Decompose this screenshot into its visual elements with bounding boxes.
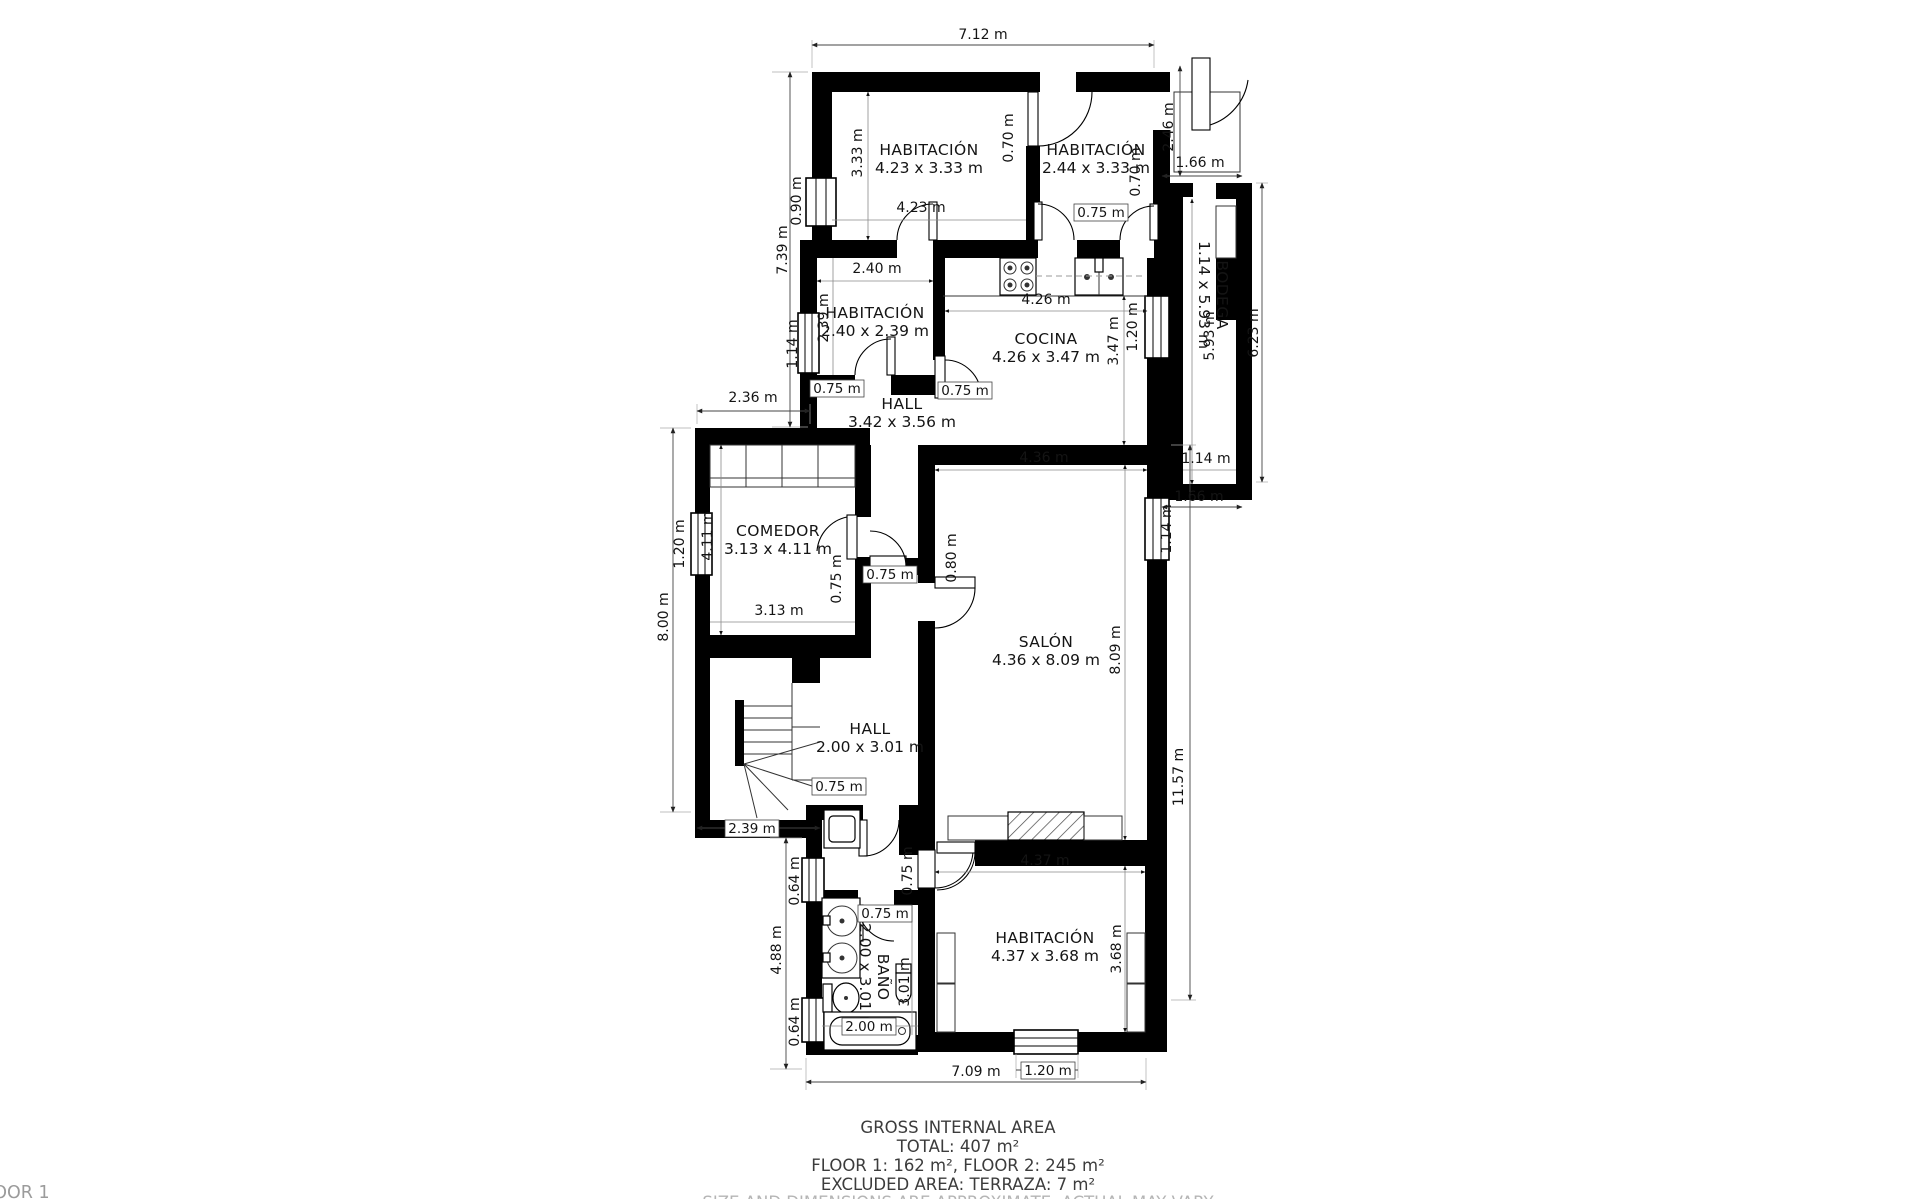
label-bed3-window: 1.20 m	[1021, 1062, 1075, 1079]
dim-cocina-window: 1.20 m	[1125, 302, 1141, 351]
svg-text:1.20 m: 1.20 m	[1024, 1063, 1072, 1079]
room-cocina-name: COCINA	[1014, 330, 1077, 348]
dim-left-upper: 7.39 m	[775, 225, 791, 274]
fireplace	[948, 812, 1122, 840]
dim-bed2-right-door: 0.70 m	[1128, 147, 1144, 196]
svg-text:0.75 m: 0.75 m	[813, 381, 861, 397]
door-hall-lower	[859, 820, 899, 856]
dim-right-lower-total: 11.57 m	[1171, 748, 1187, 806]
summary-title: GROSS INTERNAL AREA	[860, 1118, 1056, 1137]
summary-disclaimer: SIZE AND DIMENSIONS ARE APPROXIMATE, ACT…	[702, 1193, 1214, 1199]
door-hall-upper	[870, 531, 906, 567]
label-hall-lower-door: 0.75 m	[812, 778, 866, 795]
bodega-niche	[1216, 206, 1236, 258]
room-hab-name: HABITACIÓN	[825, 303, 924, 322]
room-comedor-size: 3.13 x 4.11 m	[724, 540, 832, 558]
door-hab	[855, 337, 895, 375]
door-bed-partition	[1028, 92, 1092, 146]
dim-bed-partition-door: 0.70 m	[1001, 113, 1017, 162]
comedor-closet	[710, 445, 855, 487]
svg-text:0.75 m: 0.75 m	[866, 567, 914, 583]
dim-salon-height: 8.09 m	[1108, 625, 1124, 674]
label-hall-upper-door: 0.75 m	[863, 566, 917, 583]
dim-comedor-top: 2.36 m	[728, 390, 777, 406]
summary-excluded: EXCLUDED AREA: TERRAZA: 7 m²	[821, 1175, 1095, 1194]
dim-corridor-door: 0.75 m	[900, 846, 916, 895]
summary-total: TOTAL: 407 m²	[896, 1137, 1020, 1156]
dim-comedor-window: 1.20 m	[672, 519, 688, 568]
stove	[1000, 258, 1036, 295]
room-bed1-size: 4.23 x 3.33 m	[875, 159, 983, 177]
room-bed3-size: 4.37 x 3.68 m	[991, 947, 1099, 965]
door-corridor	[918, 850, 973, 888]
label-stairs-width: 2.39 m	[725, 820, 779, 837]
dim-terrace-width: 1.66 m	[1175, 155, 1224, 171]
window-bed1	[806, 178, 836, 226]
dim-left-mid: 8.00 m	[656, 592, 672, 641]
dim-bed3-height: 3.68 m	[1109, 924, 1125, 973]
dim-comedor-height: 4.11 m	[700, 511, 716, 560]
floor-tag: FLOOR 1	[0, 1183, 50, 1199]
bath-sinks	[822, 898, 860, 978]
label-bano-width: 2.00 m	[842, 1018, 896, 1035]
svg-text:0.75 m: 0.75 m	[861, 906, 909, 922]
dim-left-lower: 4.88 m	[769, 925, 785, 974]
dim-bottom-width: 7.09 m	[951, 1064, 1000, 1080]
dim-bodega-bottom: 1.66 m	[1174, 489, 1223, 505]
room-bed3-name: HABITACIÓN	[995, 928, 1094, 947]
svg-text:0.75 m: 0.75 m	[941, 383, 989, 399]
dim-bano-window-2: 0.64 m	[787, 997, 803, 1046]
label-bed2-door: 0.75 m	[1074, 204, 1128, 221]
room-hab-size: 2.40 x 2.39 m	[821, 322, 929, 340]
kitchen-fixtures	[943, 258, 1147, 296]
summary-block: GROSS INTERNAL AREA TOTAL: 407 m² FLOOR …	[0, 1118, 1215, 1199]
svg-text:2.00 x 3.01 m: 2.00 x 3.01 m	[856, 923, 874, 1031]
room-hall-lower-name: HALL	[849, 720, 890, 738]
toilet	[823, 983, 859, 1013]
room-hall-upper-size: 3.42 x 3.56 m	[848, 413, 956, 431]
dim-bed1-window: 0.90 m	[789, 176, 805, 225]
svg-text:2.39 m: 2.39 m	[728, 821, 776, 837]
window-cocina	[1145, 296, 1169, 358]
svg-text:0.75 m: 0.75 m	[815, 779, 863, 795]
svg-text:2.00 m: 2.00 m	[845, 1019, 893, 1035]
label-cocina-door: 0.75 m	[938, 382, 992, 399]
dim-comedor-door: 0.75 m	[829, 554, 845, 603]
dim-hab-width: 2.40 m	[852, 261, 901, 277]
dim-comedor-width: 3.13 m	[754, 603, 803, 619]
dim-cocina-width: 4.26 m	[1021, 292, 1070, 308]
room-bed1-name: HABITACIÓN	[879, 140, 978, 159]
room-comedor-name: COMEDOR	[736, 522, 820, 540]
room-hall-upper-name: HALL	[881, 395, 922, 413]
dim-top-width: 7.12 m	[958, 27, 1007, 43]
window-bed3	[1014, 1030, 1078, 1054]
summary-floors: FLOOR 1: 162 m², FLOOR 2: 245 m²	[811, 1156, 1105, 1175]
dim-salon-window: 1.14 m	[1159, 504, 1175, 553]
dim-cocina-height: 3.47 m	[1106, 316, 1122, 365]
utility-box	[824, 810, 860, 848]
room-salon-size: 4.36 x 8.09 m	[992, 651, 1100, 669]
svg-text:0.75 m: 0.75 m	[1077, 205, 1125, 221]
dim-right-upper-total: 6.23 m	[1246, 308, 1262, 357]
door-salon	[935, 577, 975, 628]
dim-bed3-width: 4.37 m	[1020, 853, 1069, 869]
floor-plan: HABITACIÓN 4.23 x 3.33 m HABITACIÓN 2.44…	[0, 0, 1920, 1199]
dim-salon-width: 4.36 m	[1019, 450, 1068, 466]
dim-hab-height: 2.39 m	[816, 293, 832, 342]
window-bano-1	[802, 858, 824, 902]
dim-bed1-height: 3.33 m	[850, 128, 866, 177]
dim-bed1-width: 4.23 m	[896, 200, 945, 216]
label-hab-door: 0.75 m	[810, 380, 864, 397]
room-cocina-size: 4.26 x 3.47 m	[992, 348, 1100, 366]
dim-terrace-height: 2.46 m	[1161, 102, 1177, 151]
dim-salon-door: 0.80 m	[944, 533, 960, 582]
staircase	[735, 683, 820, 818]
room-salon-name: SALÓN	[1019, 632, 1074, 651]
walls	[695, 72, 1252, 1055]
door-bed2-left	[1034, 202, 1074, 240]
room-hall-lower-size: 2.00 x 3.01 m	[816, 738, 924, 756]
dim-bano-height: 3.01 m	[897, 957, 913, 1006]
label-bano-door: 0.75 m	[858, 905, 912, 922]
dim-bano-window-1: 0.64 m	[787, 856, 803, 905]
window-bano-2	[802, 998, 824, 1042]
dim-bodega-width: 1.14 m	[1181, 451, 1230, 467]
dim-bodega-length: 5.93 m	[1202, 311, 1218, 360]
dim-hab-window: 1.14 m	[785, 319, 801, 368]
svg-text:BAÑO: BAÑO	[874, 954, 893, 1001]
